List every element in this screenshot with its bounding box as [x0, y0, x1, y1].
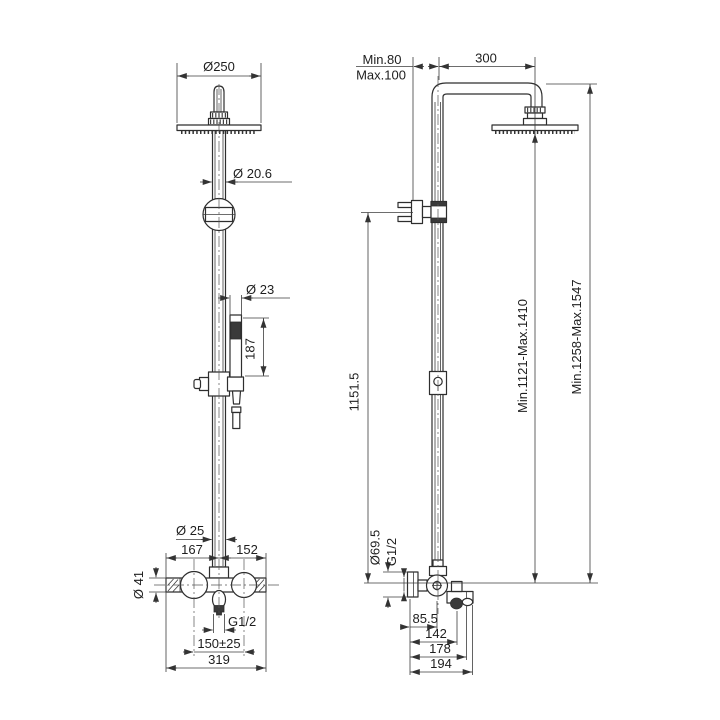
dim-arm-projection: 300	[475, 51, 497, 66]
side-view: Min.80 Max.100 300 1151.5 Min.1121-Max.1…	[347, 51, 599, 676]
dim-head-diameter: Ø250	[203, 59, 235, 74]
dim-spout-offset: 85.5	[413, 611, 438, 626]
dim-knob-depth: 142	[425, 626, 447, 641]
outlet-side	[462, 598, 472, 605]
dim-overall-depth: 194	[430, 656, 452, 671]
dim-handshower-diameter: Ø 23	[246, 282, 274, 297]
shower-column-drawing: Ø250 Ø 20.6 Ø 23 187 Ø 25	[0, 0, 720, 720]
dim-outlet-thread: G1/2	[228, 614, 256, 629]
dim-left-offset: 167	[181, 542, 203, 557]
dim-right-offset: 152	[236, 542, 258, 557]
front-view: Ø250 Ø 20.6 Ø 23 187 Ø 25	[131, 59, 292, 672]
riser-pipe	[213, 131, 226, 568]
dim-wall-clearance-max: Max.100	[356, 68, 406, 83]
dim-bracket-height: 1151.5	[347, 373, 362, 412]
dim-head-height-range: Min.1121-Max.1410	[515, 299, 530, 413]
dim-flange-diameter: Ø69.5	[368, 530, 383, 565]
wall-flange	[408, 572, 419, 597]
hand-shower	[230, 315, 242, 429]
dim-handshower-length: 187	[243, 338, 258, 360]
hose-connector	[232, 407, 241, 413]
dim-supply-spacing: 150±25	[197, 636, 240, 651]
wall-bracket	[398, 201, 447, 224]
dim-overall-height-range: Min.1258-Max.1547	[569, 280, 584, 395]
technical-drawing-page: Ø250 Ø 20.6 Ø 23 187 Ø 25	[0, 0, 720, 720]
diverter-knob-side	[451, 598, 463, 609]
dimensions-side: Min.80 Max.100 300 1151.5 Min.1121-Max.1…	[347, 51, 599, 676]
dim-spout-depth: 178	[429, 641, 451, 656]
dim-inlet-thread: G1/2	[384, 538, 399, 566]
dim-upper-pipe-diameter: Ø 20.6	[233, 166, 272, 181]
dim-riser-diameter: Ø 25	[176, 523, 204, 538]
dim-body-diameter: Ø 41	[131, 571, 146, 599]
mixer-body-front	[166, 567, 266, 615]
mixer-body-side	[408, 560, 474, 609]
handshower-head	[231, 322, 241, 339]
dim-wall-clearance-min: Min.80	[362, 52, 401, 67]
dim-overall-width: 319	[208, 652, 230, 667]
